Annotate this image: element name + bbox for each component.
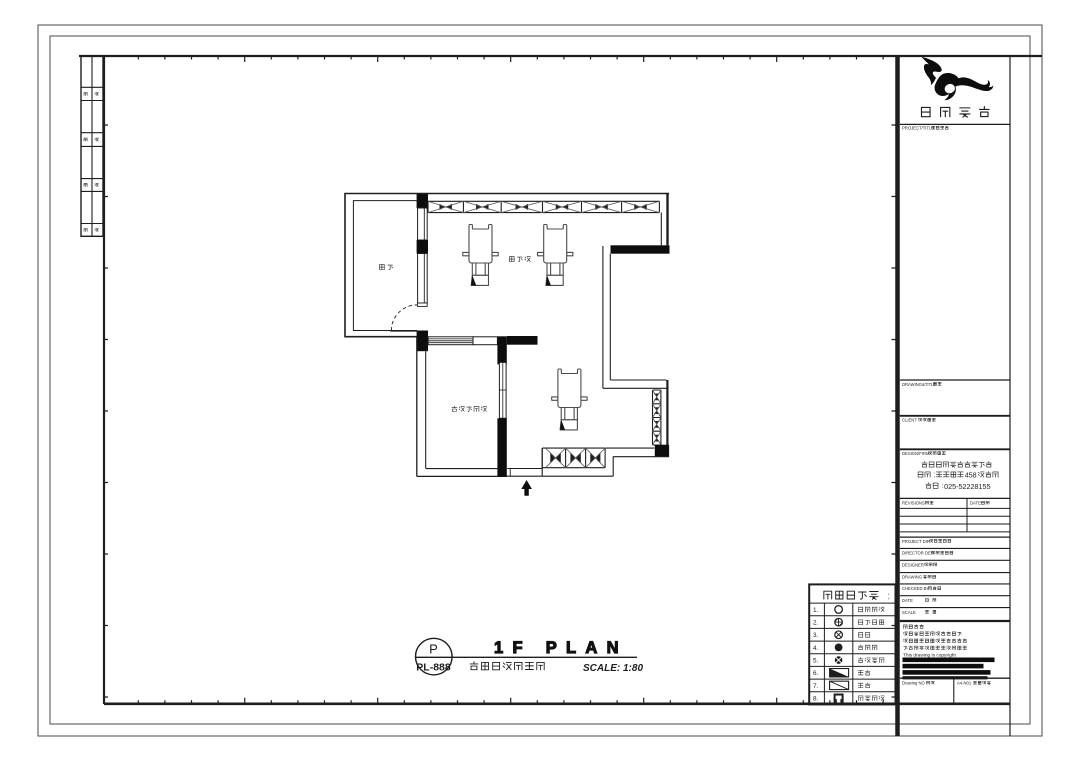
svg-text:This drawing is copyright: This drawing is copyright (903, 652, 956, 658)
svg-text:2.: 2. (813, 619, 819, 626)
svg-text:Drawing NO: Drawing NO (902, 681, 926, 686)
svg-text:025-52228155: 025-52228155 (944, 482, 990, 491)
svg-text:3.: 3. (813, 632, 819, 639)
svg-text:CHECKED BY: CHECKED BY (902, 586, 929, 591)
svg-text:SCALE: 1:80: SCALE: 1:80 (583, 663, 643, 674)
svg-text:DATE: DATE (970, 501, 981, 506)
svg-text:1.: 1. (813, 607, 819, 614)
svg-text:CLIENT: CLIENT (902, 418, 917, 423)
svg-text:5.: 5. (813, 657, 819, 664)
svg-text:DIRECTOR DER: DIRECTOR DER (902, 551, 934, 556)
svg-text:PROJECT/TITLE: PROJECT/TITLE (902, 126, 934, 131)
svg-text:7.: 7. (813, 683, 819, 690)
svg-text:PL-888: PL-888 (416, 662, 451, 674)
svg-text:P: P (429, 642, 438, 657)
svg-text:6.: 6. (813, 670, 819, 677)
svg-text:A4-N01: A4-N01 (957, 681, 972, 686)
svg-text:DRAWING&TITLE: DRAWING&TITLE (902, 382, 936, 387)
svg-text:DESIGN/FIRM: DESIGN/FIRM (902, 451, 930, 456)
svg-text:PROJECT DIR: PROJECT DIR (902, 539, 930, 544)
svg-text:SCALE: SCALE (902, 610, 916, 615)
svg-text:DESIGNER: DESIGNER (902, 562, 924, 567)
svg-text:DRAWING: DRAWING (902, 575, 922, 580)
svg-text:458: 458 (965, 471, 977, 480)
svg-text:DATE: DATE (902, 598, 913, 603)
svg-text:4.: 4. (813, 645, 819, 652)
svg-text:8.: 8. (813, 695, 819, 702)
svg-text:1F PLAN: 1F PLAN (494, 639, 628, 657)
svg-text:REVISIONS: REVISIONS (902, 501, 925, 506)
